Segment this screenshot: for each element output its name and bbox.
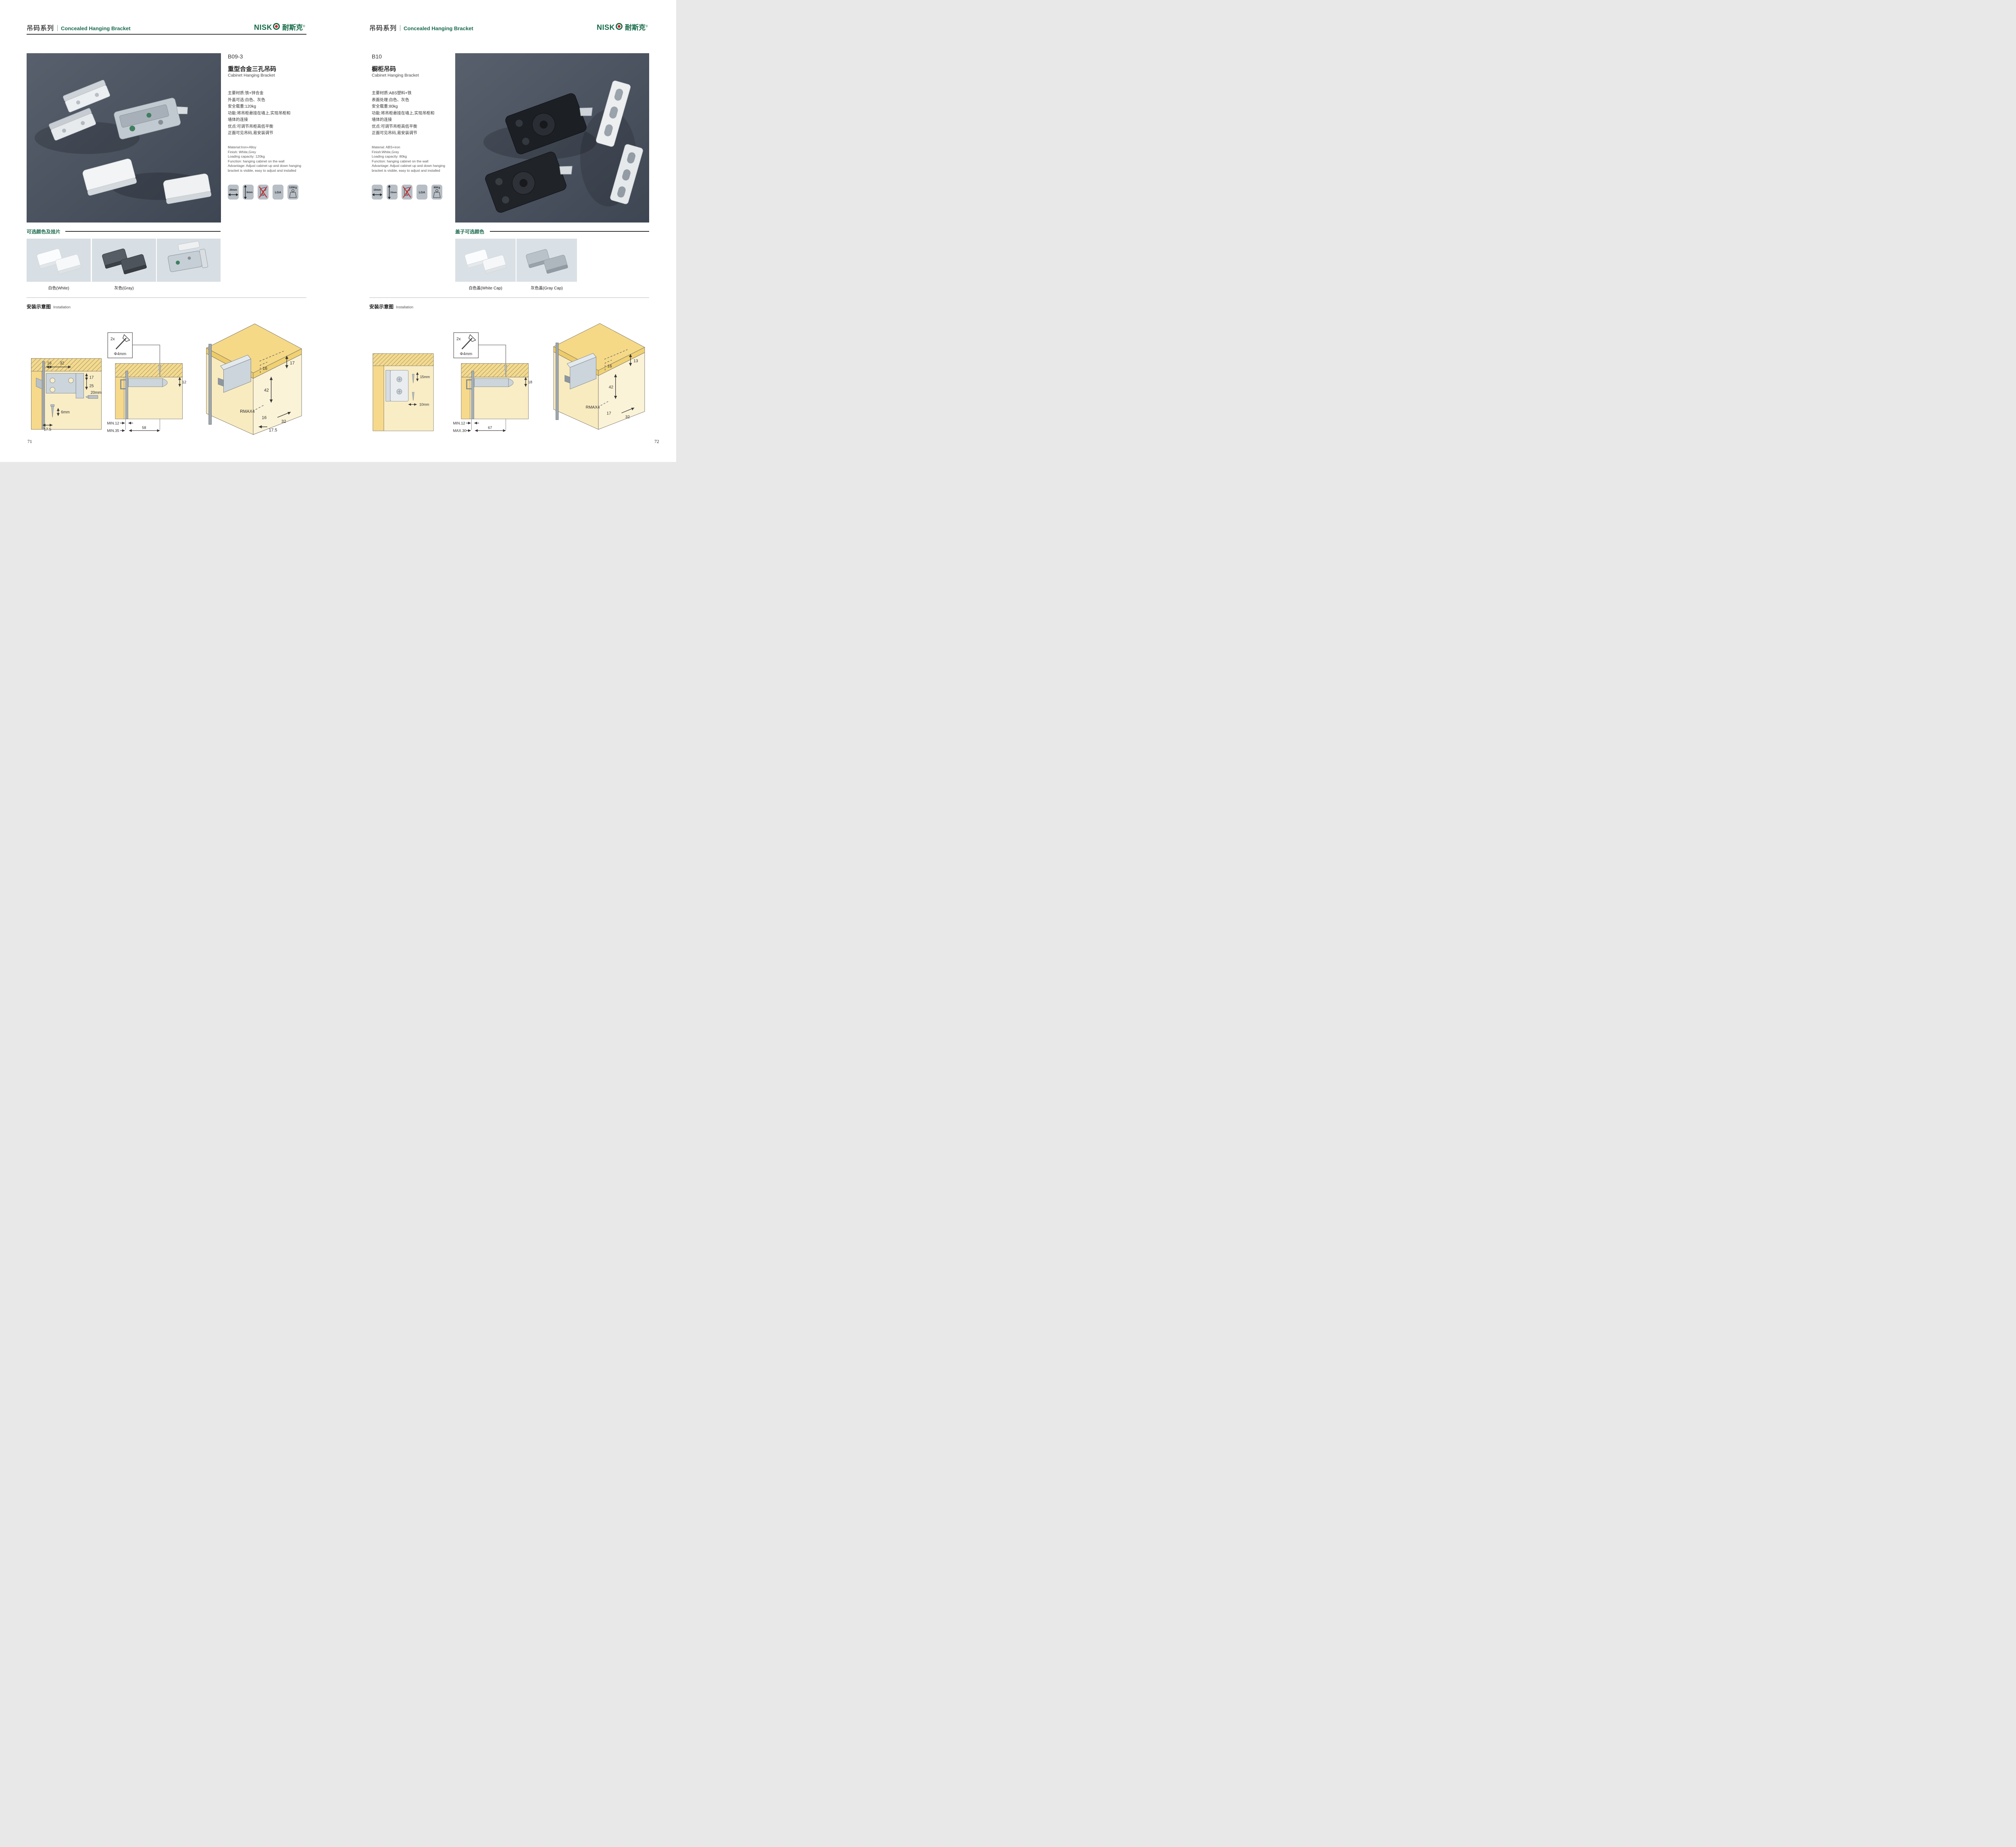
dim-label: 16 xyxy=(47,361,52,366)
installation-title: 安装示意图Installation xyxy=(369,303,413,310)
spec-line: Finish: White,Grey xyxy=(228,150,301,155)
spec-line: Function: hanging cabinet on the wall xyxy=(372,159,445,164)
installation-diagram-section: 2x Φ4mm 12 MIN.12 MIN.35 58 xyxy=(106,331,186,433)
spec-line: bracket is visible, easy to adjust and i… xyxy=(372,168,445,173)
spec-line: Advantage: Adjust cabinet up and down ha… xyxy=(372,164,445,168)
dim-label: 25 xyxy=(90,384,94,389)
swatch-white-cap xyxy=(455,239,516,282)
dim-label: RMAX4 xyxy=(240,409,255,414)
header-divider xyxy=(400,25,400,31)
spec-line: 主要材质:ABS塑料+铁 xyxy=(372,90,435,97)
dim-label: 32 xyxy=(625,415,630,420)
icon-panel-width: 20mm xyxy=(228,185,239,200)
dim-label: 58 xyxy=(142,426,146,430)
swatch-gray xyxy=(92,239,156,282)
icon-height-label: 6mm xyxy=(246,191,252,194)
icon-width-label: 20mm xyxy=(229,189,237,191)
page-number: 72 xyxy=(654,439,659,444)
installation-title-cn: 安装示意图 xyxy=(369,304,394,310)
installation-title: 安装示意图Installation xyxy=(27,303,71,310)
spec-line: Loading capacity: 120kg xyxy=(228,154,301,159)
spec-line: 优点:可调节吊柜高低平衡 xyxy=(228,124,291,131)
dim-label: MAX.30 xyxy=(453,429,467,433)
icon-no-drill xyxy=(258,185,269,200)
specs-cn: 主要材质:ABS塑料+铁 表面处理:白色、灰色 安全载重:80kg 功能:将吊柜… xyxy=(372,90,435,137)
brand-logo-dot-icon xyxy=(275,25,278,28)
right-page-header: 吊码系列Concealed Hanging Bracket xyxy=(369,23,473,32)
series-title-cn: 吊码系列 xyxy=(369,25,397,32)
catalog-spread: 吊码系列Concealed Hanging Bracket NISK耐斯克® xyxy=(0,0,676,462)
spec-line: 墙体的连接 xyxy=(228,117,291,124)
icon-cert: LGA xyxy=(273,185,283,200)
brand-logo-cn: 耐斯克 xyxy=(282,24,303,31)
left-page-header: 吊码系列Concealed Hanging Bracket xyxy=(27,23,131,32)
header-divider xyxy=(57,25,58,31)
dim-label: 42 xyxy=(609,385,614,389)
spec-line: 功能:将吊柜悬挂在墙上,实现吊柜和 xyxy=(372,110,435,117)
swatch-label-gray: 灰色(Gray) xyxy=(92,285,156,291)
spec-line: 安全载重:80kg xyxy=(372,104,435,110)
icon-cert-label: LGA xyxy=(275,191,281,194)
swatch-label-white: 白色(White) xyxy=(27,285,91,291)
dim-label: 20mm xyxy=(91,391,102,395)
product-photo-illustration xyxy=(27,53,221,223)
product-name-en: Cabinet Hanging Bracket xyxy=(372,73,419,78)
spec-line: Function: hanging cabinet on the wall xyxy=(228,159,301,164)
dim-label: 42 xyxy=(264,388,269,393)
specs-en: Material:Iron+Alloy Finish: White,Grey L… xyxy=(228,145,301,173)
swatch-gray-cap xyxy=(516,239,577,282)
product-code: B09-3 xyxy=(228,53,243,60)
screw-dia-label: Φ4mm xyxy=(460,352,472,356)
spec-line: 安全载重:120kg xyxy=(228,104,291,110)
section-divider xyxy=(27,297,306,298)
installation-diagram-section: 17 16 42 RMAX4 16 32 17.5 xyxy=(201,315,306,436)
colors-section-title: 可选颜色及挂片 xyxy=(27,228,60,235)
icon-cert-label: LGA xyxy=(419,191,425,194)
registered-mark: ® xyxy=(646,25,648,28)
screw-qty-label: 2x xyxy=(456,337,461,341)
specs-cn: 主要材质:铁+锌合金 外盖可选:白色、灰色 安全载重:120kg 功能:将吊柜悬… xyxy=(228,90,291,137)
brand-logo-o-icon xyxy=(273,23,280,30)
swatch-label-white-cap: 白色盖(White Cap) xyxy=(455,285,516,291)
icon-height-label: 15mm xyxy=(390,191,397,194)
weight-icon xyxy=(292,189,294,192)
icon-load: 120Kg xyxy=(287,185,298,200)
icon-no-drill xyxy=(402,185,412,200)
icon-width-label: 10mm xyxy=(373,189,381,191)
spec-line: Loading capacity: 80kg xyxy=(372,154,445,159)
colors-section-title: 盖子可选颜色 xyxy=(455,228,484,235)
spec-line: 正面可见吊码,易安装调节 xyxy=(228,130,291,137)
dim-label: 17.5 xyxy=(44,428,51,432)
installation-diagram-section: 16 32 17 25 20mm 6mm 17.5 xyxy=(29,339,104,433)
dim-label: 32 xyxy=(281,419,286,424)
series-title-en: Concealed Hanging Bracket xyxy=(61,25,131,31)
product-name-cn: 橱柜吊码 xyxy=(372,64,396,73)
dim-label: 13 xyxy=(633,359,638,364)
swatch-bracket xyxy=(157,239,221,282)
dim-label: 18 xyxy=(528,380,532,384)
spec-line: bracket is visible, easy to adjust and i… xyxy=(228,168,301,173)
dim-label: 6mm xyxy=(61,410,69,415)
specs-en: Material: ABS+iron Finish:White,Grey Loa… xyxy=(372,145,445,173)
spec-line: Material:Iron+Alloy xyxy=(228,145,301,150)
product-name-en: Cabinet Hanging Bracket xyxy=(228,73,275,78)
installation-title-cn: 安装示意图 xyxy=(27,304,51,310)
dim-label: 16 xyxy=(262,415,267,420)
brand-logo: NISK耐斯克® xyxy=(597,22,648,32)
header-rule xyxy=(27,34,306,35)
icon-load-label: 120Kg xyxy=(289,186,297,189)
product-photo-b09-3 xyxy=(27,53,221,223)
dim-label: 17 xyxy=(290,361,295,366)
dim-label: RMAX4 xyxy=(586,405,600,410)
dim-label: 17 xyxy=(90,375,94,380)
icon-panel-height: 6mm xyxy=(243,185,254,200)
dim-label: 12 xyxy=(182,380,186,384)
spec-line: 功能:将吊柜悬挂在墙上,实现吊柜和 xyxy=(228,110,291,117)
dim-label: 15mm xyxy=(420,375,430,379)
installation-diagram-section: 15mm 10mm xyxy=(371,341,435,433)
colors-section-rule xyxy=(490,231,649,232)
series-title-cn: 吊码系列 xyxy=(27,25,54,32)
dim-label: 16 xyxy=(607,364,612,369)
spec-line: Advantage: Adjust cabinet up and down ha… xyxy=(228,164,301,168)
spec-line: 优点:可调节吊柜高低平衡 xyxy=(372,124,435,131)
icon-cert: LGA xyxy=(417,185,427,200)
dim-label: 32 xyxy=(60,361,65,366)
series-title-en: Concealed Hanging Bracket xyxy=(404,25,473,31)
dim-label: 16 xyxy=(262,366,267,371)
product-photo-illustration xyxy=(455,53,649,223)
spec-line: 主要材质:铁+锌合金 xyxy=(228,90,291,97)
swatch-label-gray-cap: 灰色盖(Gray Cap) xyxy=(516,285,577,291)
product-name-cn: 重型合金三孔吊码 xyxy=(228,64,276,73)
dim-label: MIN.12 xyxy=(453,421,465,425)
installation-title-en: Installation xyxy=(396,305,413,309)
screw-dia-label: Φ4mm xyxy=(114,352,126,356)
spec-line: Material: ABS+iron xyxy=(372,145,445,150)
brand-logo-cn: 耐斯克 xyxy=(625,24,646,31)
brand-logo-dot-icon xyxy=(618,25,621,28)
colors-section-rule xyxy=(65,231,221,232)
spec-line: 墙体的连接 xyxy=(372,117,435,124)
dim-label: 10mm xyxy=(419,403,429,407)
dim-label: 67 xyxy=(488,426,492,430)
icon-load: 80Kg xyxy=(431,185,442,200)
dim-label: 17.5 xyxy=(269,428,277,433)
icon-panel-height: 15mm xyxy=(387,185,398,200)
section-divider xyxy=(369,297,649,298)
installation-title-en: Installation xyxy=(53,305,71,309)
weight-icon xyxy=(436,189,438,192)
dim-label: MIN.35 xyxy=(107,429,119,433)
installation-diagram-section: 13 16 42 RMAX4 17 32 xyxy=(548,315,649,431)
spec-line: 表面处理:白色、灰色 xyxy=(372,97,435,104)
dim-label: MIN.12 xyxy=(107,421,119,425)
page-number: 71 xyxy=(27,439,32,444)
spec-line: Finish:White,Grey xyxy=(372,150,445,155)
spec-line: 正面可见吊码,易安装调节 xyxy=(372,130,435,137)
brand-logo-text: NISK xyxy=(597,23,615,31)
registered-mark: ® xyxy=(303,25,305,28)
brand-logo-text: NISK xyxy=(254,23,272,31)
icon-panel-width: 10mm xyxy=(372,185,383,200)
brand-logo-o-icon xyxy=(616,23,623,30)
dim-label: 17 xyxy=(606,411,611,416)
brand-logo: NISK耐斯克® xyxy=(254,22,305,32)
installation-diagram-section: 2x Φ4mm 18 MIN.12 MAX.30 67 xyxy=(452,331,532,433)
screw-qty-label: 2x xyxy=(110,337,115,341)
product-code: B10 xyxy=(372,53,382,60)
icon-load-label: 80Kg xyxy=(434,186,440,189)
spec-line: 外盖可选:白色、灰色 xyxy=(228,97,291,104)
swatch-white xyxy=(27,239,91,282)
product-photo-b10 xyxy=(455,53,649,223)
